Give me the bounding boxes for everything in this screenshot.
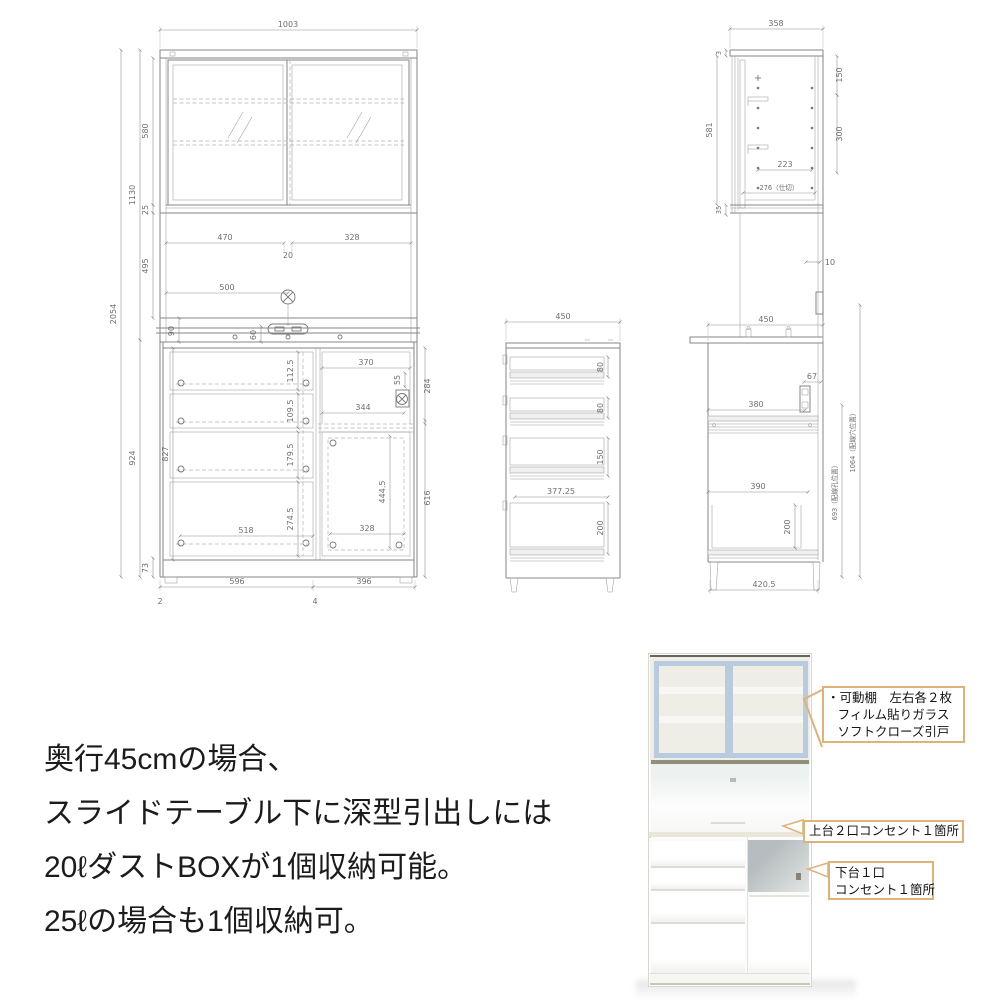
side-view-upper: 358 3 581 35 150 300 223 276（仕切） 10 [705,19,844,337]
dim-front-rail-height: 25 [141,205,150,215]
counter-outlet-icon [268,324,308,334]
dim-side-back-clearance: 10 [825,258,835,267]
drawer-front-3 [651,891,745,924]
dim-right-door-inner: 444.5 [378,481,387,504]
lower-cabinet [651,837,809,976]
dim-side-partition: 276（仕切） [760,183,799,192]
dim-niche-outlet-offset: 55 [393,375,402,385]
dim-niche-shelf-width: 344 [355,403,370,412]
lower-wiring-box [800,386,810,412]
open-niche [748,840,809,892]
dim-front-lower-inner: 827 [161,446,170,461]
drawer-column [651,837,748,976]
dim-front-left-door: 470 [217,233,232,242]
base-plinth [650,973,810,985]
dim-bottom-right-width: 396 [356,577,371,586]
description-line-1: 奥行45cmの場合、 [44,733,644,787]
dim-drawer-depth: 200 [783,519,792,534]
dim-front-door-overlap: 20 [283,251,293,260]
dim-drawer3-depth: 150 [596,449,605,464]
drawer-front-4 [651,924,745,975]
callout-upper-outlet: 上台２口コンセント１箇所 [803,820,964,843]
dim-front-base-height: 73 [141,563,150,573]
dim-drawerview-depth: 450 [555,312,570,321]
dim-side-shelf-pitch: 300 [835,126,844,141]
shelf-band [733,716,803,723]
deep-drawer-profile [708,505,818,558]
label-left-number: 2 [157,597,162,606]
dim-drawer-inner-depth: 390 [750,482,765,491]
upper-glass-cabinet [650,655,810,765]
handle-mark [711,822,745,824]
dim-drawer-inner-depth-2: 377.25 [547,487,575,496]
callout-line: フィルム貼りガラス [827,707,960,724]
drawer-front-2 [651,868,745,891]
description-line-2: スライドテーブル下に深型引出しには [44,787,644,841]
dim-niche-width: 370 [358,358,373,367]
upper-wiring-box [816,292,823,314]
shelf-pin-holes [755,75,813,189]
movable-shelf-profile [748,97,768,154]
dim-slide-table-depth: 380 [748,400,763,409]
callout-line: コンセント１箇所 [835,882,927,899]
glass-slash-icon [228,112,371,143]
dim-drawer4-depth: 200 [596,520,605,535]
dim-upper-hole-height: 1064（配線穴位置） [848,410,857,473]
shelf-band [659,716,725,723]
dim-drawer1-depth: 80 [596,362,605,372]
upper-outlet-mark [730,778,736,782]
drawer-front-1 [651,841,745,868]
dim-front-glass-height: 580 [141,123,150,138]
dim-drawer4-height: 274.5 [286,508,295,531]
dim-side-top-pitch: 150 [835,67,844,82]
dim-drawer-inner-width: 518 [238,526,253,535]
dim-front-counter-back: 90 [167,326,176,336]
niche-outlet-icon [396,390,409,407]
slide-table-rail [708,416,818,433]
dim-drawer2-height: 109.5 [286,400,295,423]
dim-front-outlet-offset: 60 [249,330,258,340]
niche-outlet-mark [796,873,801,880]
dim-front-overall-height: 2054 [109,304,118,324]
callout-movable-shelf: ・可動棚 左右各２枚 フィルム貼りガラス ソフトクローズ引戸 [822,686,965,743]
dim-right-door-height: 616 [423,490,432,505]
label-right-number: 4 [312,597,317,606]
dim-side-outlet-offset: 67 [807,372,817,381]
callout-line: ソフトクローズ引戸 [827,724,960,741]
sliding-door-rail [651,760,809,764]
page: 1003 2054 1130 924 580 25 495 73 90 827 … [0,0,1000,1000]
dim-side-bottom-clearance: 35 [715,206,723,214]
shelf-band [659,687,725,694]
front-right-section [318,352,414,556]
dim-right-door-width: 328 [359,524,374,533]
dim-front-upper-height: 1130 [128,185,137,205]
description-line-4: 25ℓの場合も1個収納可。 [44,895,644,949]
glass-door-left [654,661,730,758]
right-door-front [749,895,809,976]
callout-line: 下台１口 [835,865,927,882]
description-line-3: 20ℓダストBOXが1個収納可能。 [44,841,644,895]
dim-front-open-height: 495 [141,258,150,273]
dim-side-top-clearance: 3 [715,51,723,55]
front-drawer-stack [170,352,313,556]
dim-base-depth: 420.5 [753,580,776,589]
callout-line: ・可動棚 左右各２枚 [827,690,960,707]
counter-open-space [651,765,809,832]
dim-front-right-door: 328 [344,233,359,242]
side-view-lower: 450 67 380 390 200 420.5 693（配線孔位置） 1064… [690,305,860,594]
dim-front-overall-width: 1003 [278,20,298,29]
dim-side-shelf-depth: 223 [777,160,792,169]
dim-niche-height: 284 [423,378,432,393]
callout-lower-outlet: 下台１口 コンセント１箇所 [828,861,934,900]
dim-front-lower-height: 924 [128,450,137,465]
glass-door-right [728,661,808,758]
product-photo [648,653,812,987]
dim-side-depth-bottom: 450 [758,315,773,324]
dim-lower-hole-height: 693（配線孔位置） [830,462,839,521]
description-text: 奥行45cmの場合、 スライドテーブル下に深型引出しには 20ℓダストBOXが1… [44,733,644,949]
dim-drawer2-depth: 80 [596,403,605,413]
front-view: 1003 2054 1130 924 580 25 495 73 90 827 … [109,20,432,606]
dim-side-inner-height: 581 [705,122,714,137]
dim-bottom-left-width: 596 [229,577,244,586]
shelf-band [733,687,803,694]
dim-drawer3-height: 179.5 [286,444,295,467]
wiring-symbol-icon [281,290,295,326]
drawer-section-view: 450 80 80 150 200 377.25 [503,312,620,592]
dim-drawer1-height: 112.5 [286,360,295,383]
dim-front-light-pos: 500 [219,283,234,292]
dim-side-depth-top: 358 [768,19,783,28]
